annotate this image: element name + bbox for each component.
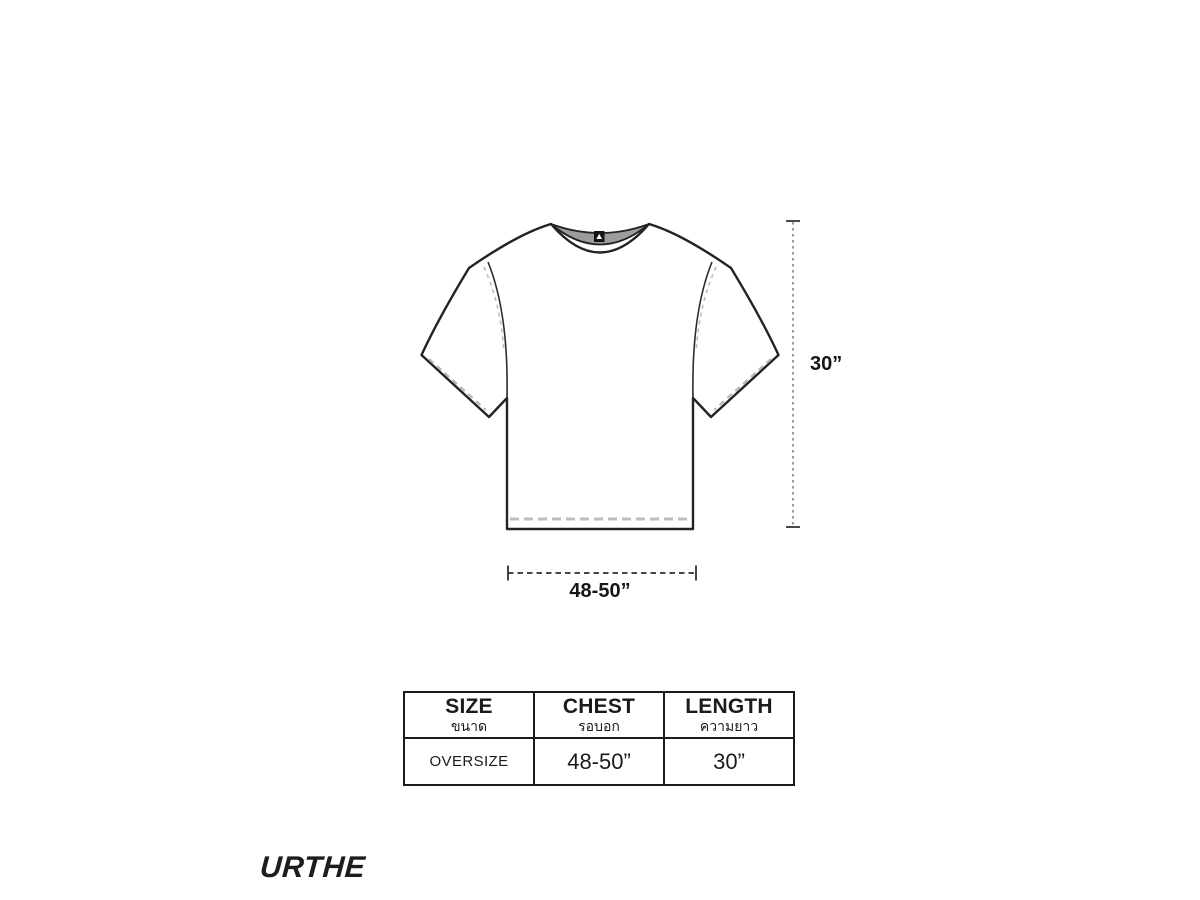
size-table-header-size: SIZE ขนาด	[404, 692, 534, 738]
header-length-th: ความยาว	[665, 719, 793, 734]
size-table-data-row: OVERSIZE 48-50” 30”	[404, 738, 794, 785]
brand-logo: URTHE	[259, 850, 367, 886]
size-table-header-row: SIZE ขนาด CHEST รอบอก LENGTH ความยาว	[404, 692, 794, 738]
length-dimension-value: 30”	[810, 352, 842, 376]
tshirt-body-outline	[422, 224, 779, 529]
header-chest-th: รอบอก	[535, 719, 663, 734]
header-size-en: SIZE	[405, 696, 533, 718]
header-chest-en: CHEST	[535, 696, 663, 718]
header-length-en: LENGTH	[665, 696, 793, 718]
cell-length-value: 30”	[664, 738, 794, 785]
size-chart-page: 30” 48-50” SIZE ขนาด CHEST รอบอก LENGTH …	[0, 0, 1200, 900]
chest-dimension-value: 48-50”	[450, 579, 750, 603]
size-table-header-length: LENGTH ความยาว	[664, 692, 794, 738]
cell-chest-value: 48-50”	[534, 738, 664, 785]
size-table-header-chest: CHEST รอบอก	[534, 692, 664, 738]
header-size-th: ขนาด	[405, 719, 533, 734]
size-table: SIZE ขนาด CHEST รอบอก LENGTH ความยาว OVE…	[403, 691, 795, 786]
cell-size-value: OVERSIZE	[404, 738, 534, 785]
